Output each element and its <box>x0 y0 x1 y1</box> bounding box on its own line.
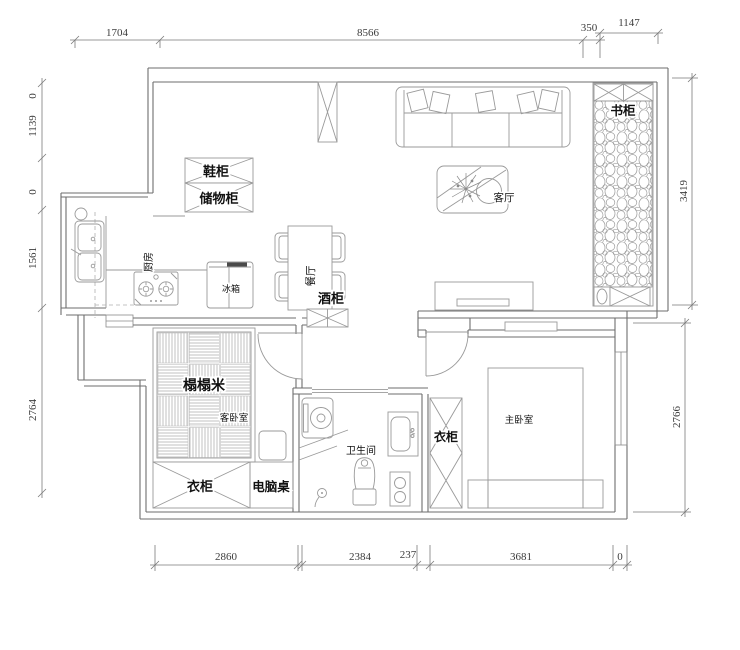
dim-bottom-2384: 2384 <box>349 551 372 563</box>
dim-left-2764: 2764 <box>27 399 39 422</box>
bookcase: 书柜 <box>593 83 653 306</box>
dim-bottom-237: 237 <box>400 549 417 561</box>
dim-left-1561: 1561 <box>27 247 39 269</box>
bookcase-bottom <box>594 287 650 306</box>
dim-left-0b: 0 <box>27 189 39 195</box>
dim-top-8566: 8566 <box>357 27 380 39</box>
dining-label: 餐厅 <box>304 266 317 287</box>
computer-desk-label: 电脑桌 <box>252 479 290 494</box>
floor-plan-page: 1704 8566 350 1147 0 1139 0 1561 2764 34… <box>0 0 740 650</box>
dim-bottom-3681: 3681 <box>510 551 532 563</box>
dim-left-0a: 0 <box>27 93 39 99</box>
bedroom-tv <box>505 322 557 331</box>
dim-top-1704: 1704 <box>106 27 129 39</box>
kitchen-label: 厨房 <box>142 252 155 272</box>
wine-cabinet-label: 酒柜 <box>318 291 344 306</box>
dim-right-3419: 3419 <box>678 180 690 203</box>
shoe-cabinet-label: 鞋柜 <box>203 164 229 179</box>
living-label: 客厅 <box>494 191 515 204</box>
dim-top-350: 350 <box>581 22 598 34</box>
bookcase-pebble-pattern <box>594 101 652 287</box>
dim-right-2766: 2766 <box>671 406 683 429</box>
fridge-label: 冰箱 <box>222 283 240 294</box>
master-wardrobe-label: 衣柜 <box>434 429 458 444</box>
master-bedroom-label: 主卧室 <box>505 414 534 426</box>
storage-cabinet-label: 储物柜 <box>198 191 238 206</box>
bathroom-label: 卫生间 <box>346 444 376 457</box>
dim-bottom-0: 0 <box>617 551 623 563</box>
master-wardrobe: 衣柜 <box>430 398 462 508</box>
guest-bedroom-label: 客卧室 <box>220 412 249 424</box>
dim-top-1147: 1147 <box>618 17 640 29</box>
guest-wardrobe-label: 衣柜 <box>187 479 213 494</box>
dim-left-1139: 1139 <box>27 115 39 137</box>
shoe-cabinet: 鞋柜 <box>185 158 253 183</box>
bookcase-label: 书柜 <box>610 103 636 118</box>
storage-cabinet: 储物柜 <box>185 183 253 212</box>
dim-bottom-2860: 2860 <box>215 551 238 563</box>
floor-plan-drawing: 1704 8566 350 1147 0 1139 0 1561 2764 34… <box>0 0 740 650</box>
guest-wardrobe: 衣柜 <box>153 462 250 508</box>
tatami-label: 榻榻米 <box>183 377 226 393</box>
